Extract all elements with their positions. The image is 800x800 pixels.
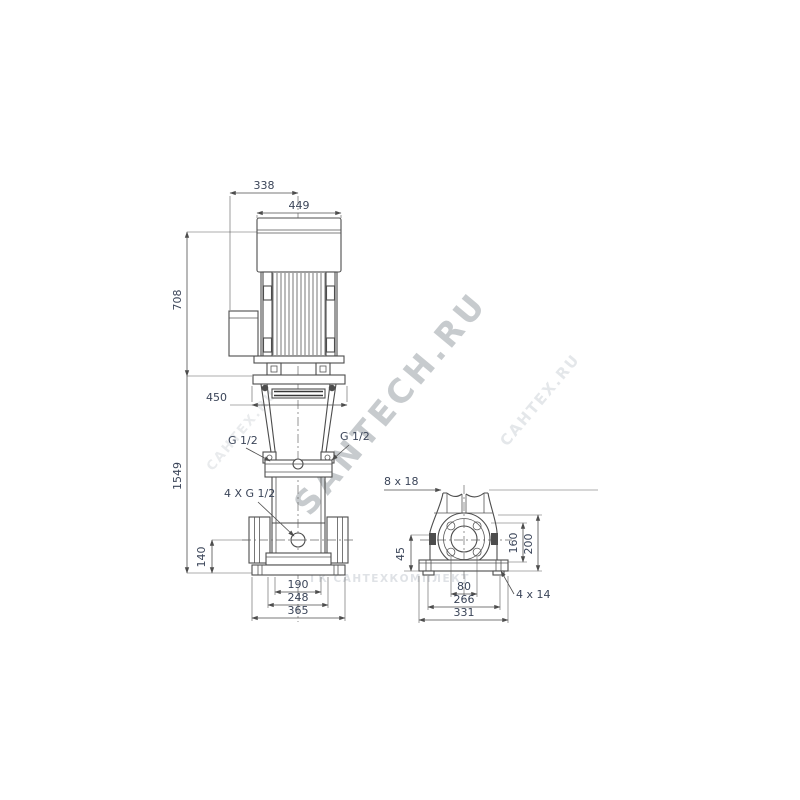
motor-flange: [254, 356, 344, 363]
dim-1549: 1549: [171, 376, 252, 573]
dim-1549-label: 1549: [171, 462, 184, 490]
motor-fan-cover: [257, 218, 341, 272]
coupling-cover: [272, 389, 325, 398]
motor-lug: [327, 338, 335, 352]
motor-lug: [264, 338, 272, 352]
motor-lug: [327, 286, 335, 300]
dim-266-label: 266: [454, 593, 475, 606]
4xg12-text: 4 X G 1/2: [224, 487, 275, 500]
pump-head-plate: [253, 375, 345, 384]
dim-140: 140: [195, 540, 249, 573]
dim-80-label: 80: [457, 580, 471, 593]
dim-449-label: 449: [289, 199, 310, 212]
side-view-dimensions: 8 x 18 45 160 200 80 266: [384, 475, 598, 623]
side-base-plate: [419, 560, 508, 571]
front-view: [229, 196, 356, 622]
dim-160-label: 160: [507, 533, 520, 554]
side-flange: [429, 513, 498, 565]
dim-248-label: 248: [288, 591, 309, 604]
g12-right-text: G 1/2: [340, 430, 370, 443]
motor-lug: [264, 286, 272, 300]
stool-lug-left: [267, 363, 281, 375]
body-right-edge: [488, 493, 497, 560]
fan-cover-body: [257, 218, 341, 272]
dim-190-label: 190: [288, 578, 309, 591]
dim-338-label: 338: [254, 179, 275, 192]
side-foot-left: [423, 571, 434, 575]
stool-lug-right: [316, 363, 330, 375]
body-top-edge: [443, 493, 488, 497]
dim-450-label: 450: [206, 391, 227, 404]
dim-45-label: 45: [394, 547, 407, 561]
dim-200-label: 200: [522, 534, 535, 555]
pump-foot: [266, 553, 331, 565]
label-8x18: 8 x 18: [384, 475, 598, 490]
4x14-text: 4 x 14: [516, 588, 551, 601]
pump-dimensional-drawing: SANTECH.RU САНТЕХ.RU САНТЕХ.RU ГК САНТЕХ…: [0, 0, 800, 800]
dim-365-label: 365: [288, 604, 309, 617]
guard-bolt-right: [329, 385, 335, 391]
pump-head: [263, 452, 334, 477]
motor-finned-body: [254, 272, 344, 363]
flange-side-tab-left: [429, 533, 436, 545]
terminal-box: [229, 311, 258, 356]
flange-side-tab-right: [491, 533, 498, 545]
g12-left-text: G 1/2: [228, 434, 258, 447]
8x18-text: 8 x 18: [384, 475, 419, 488]
guard-bolt-left: [262, 385, 268, 391]
dim-708-label: 708: [171, 290, 184, 311]
base-plate: [252, 565, 345, 575]
dim-449: 449: [257, 199, 341, 218]
dim-331-label: 331: [454, 606, 475, 619]
watermark-brand-small-right: САНТЕХ.RU: [496, 350, 583, 449]
dim-140-label: 140: [195, 547, 208, 568]
label-4x14: 4 x 14: [501, 571, 551, 601]
technical-drawing-page: SANTECH.RU САНТЕХ.RU САНТЕХ.RU ГК САНТЕХ…: [0, 0, 800, 800]
base: [252, 553, 345, 575]
